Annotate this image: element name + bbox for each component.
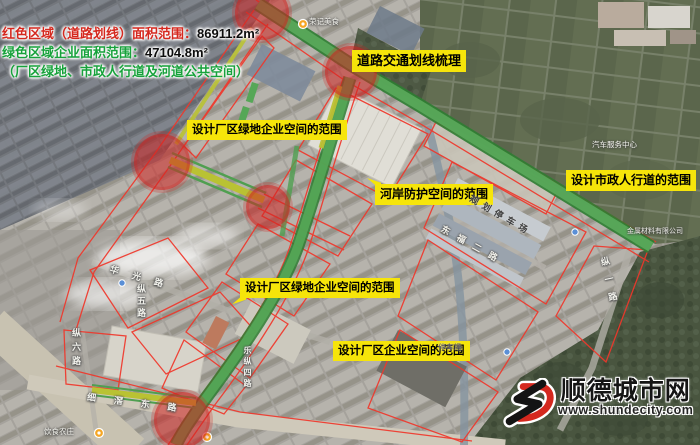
poi-pin-icon: [299, 20, 308, 29]
poi-pin-icon: [504, 349, 510, 355]
poi-label-farm-restaurant: 饮食农庄: [44, 426, 74, 437]
label-factory-green-space-lower: 设计厂区绿地企业空间的范围: [240, 278, 400, 298]
label-road-traffic-marking: 道路交通划线梳理: [352, 50, 466, 72]
poi-pin-icon: [95, 429, 104, 438]
poi-label-parking-lot: 停车场: [438, 342, 462, 353]
watermark-url: www.shundecity.com: [558, 403, 693, 417]
legend-line-note: （厂区绿地、市政人行道及河道公共空间）: [2, 62, 259, 81]
poi-label-metal-company: 金属材料有限公司: [627, 226, 683, 236]
label-factory-green-space-upper: 设计厂区绿地企业空间的范围: [187, 120, 347, 140]
annotated-satellite-map: 红色区域（道路划线）面积范围：86911.2m² 绿色区域企业面积范围：4710…: [0, 0, 700, 445]
legend-green-label: 绿色区域企业面积范围：: [2, 45, 145, 60]
poi-label-auto-service: 汽车服务中心: [592, 139, 637, 150]
watermark: 顺德城市网 www.shundecity.com: [498, 378, 693, 428]
red-circle: [246, 185, 290, 229]
label-municipal-sidewalk: 设计市政人行道的范围: [566, 170, 696, 191]
road-label-zongwu-lu: 纵五路: [135, 284, 148, 320]
legend-red-value: 86911.2m²: [197, 26, 259, 41]
legend-line-red: 红色区域（道路划线）面积范围：86911.2m²: [2, 24, 259, 43]
sd-logo-icon: [498, 378, 556, 428]
road-label-lezongsi-lu: 乐纵四路: [242, 346, 253, 390]
legend-green-note: （厂区绿地、市政人行道及河道公共空间）: [2, 64, 249, 79]
poi-pin-icon: [572, 229, 578, 235]
watermark-texts: 顺德城市网 www.shundecity.com: [558, 378, 693, 417]
area-legend: 红色区域（道路划线）面积范围：86911.2m² 绿色区域企业面积范围：4710…: [2, 24, 259, 81]
poi-pin-icon: [119, 280, 125, 286]
red-circle: [134, 134, 190, 190]
road-label-zongliu-lu: 纵六路: [70, 328, 83, 370]
legend-green-value: 47104.8m²: [145, 45, 208, 60]
watermark-site-name: 顺德城市网: [561, 378, 691, 404]
poi-label-restaurant: 荣记美食: [309, 16, 339, 27]
legend-red-label: 红色区域（道路划线）面积范围：: [2, 26, 197, 41]
legend-line-green: 绿色区域企业面积范围：47104.8m²: [2, 43, 259, 62]
